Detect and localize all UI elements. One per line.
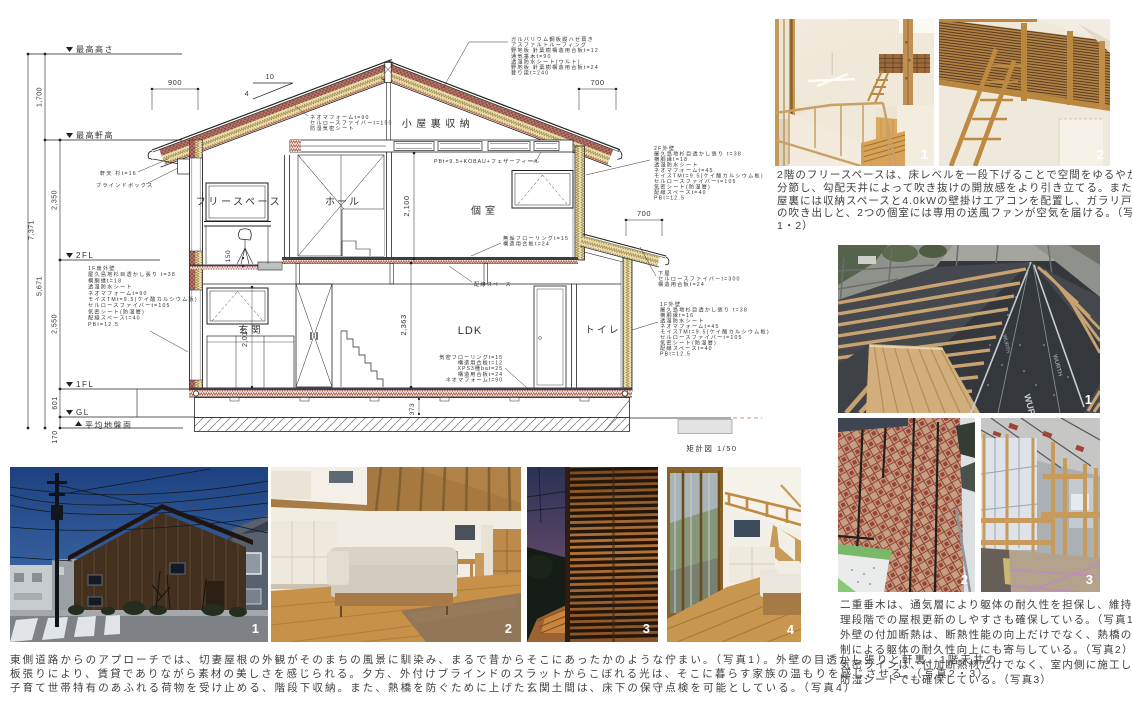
svg-text:矩計図 1/50: 矩計図 1/50	[686, 443, 737, 453]
svg-text:5,671: 5,671	[37, 276, 44, 296]
svg-text:900: 900	[168, 78, 182, 87]
svg-text:ネオマフォームt=90: ネオマフォームt=90	[446, 376, 503, 383]
svg-text:PBt=12.5: PBt=12.5	[654, 196, 685, 202]
svg-text:セルロースファイバーt=105: セルロースファイバーt=105	[88, 302, 171, 309]
svg-text:2,350: 2,350	[52, 190, 59, 210]
svg-text:GL: GL	[76, 408, 90, 417]
svg-text:4: 4	[245, 91, 249, 98]
svg-text:PBt=12.5: PBt=12.5	[88, 322, 119, 328]
svg-text:373: 373	[409, 403, 416, 415]
svg-text:フリースペース: フリースペース	[196, 197, 283, 208]
svg-text:屋久島地杉目透かし張り t=38: 屋久島地杉目透かし張り t=38	[88, 270, 176, 278]
svg-text:7,371: 7,371	[29, 220, 36, 240]
svg-text:700: 700	[637, 209, 651, 218]
svg-text:2,100: 2,100	[402, 195, 411, 216]
svg-text:平均地盤面: 平均地盤面	[85, 420, 133, 430]
svg-text:10: 10	[266, 74, 275, 81]
svg-text:防湿気密シート: 防湿気密シート	[310, 124, 355, 132]
svg-text:配線スペース: 配線スペース	[474, 280, 512, 288]
svg-text:170: 170	[52, 430, 59, 443]
svg-text:モイスTMt=9.5(ケイ酸カルシウム板): モイスTMt=9.5(ケイ酸カルシウム板)	[88, 295, 198, 303]
svg-text:構造用合板t=24: 構造用合板t=24	[658, 280, 705, 288]
svg-text:2,550: 2,550	[52, 314, 59, 334]
svg-text:2FL: 2FL	[76, 251, 94, 260]
svg-text:LDK: LDK	[458, 325, 482, 337]
svg-text:最高軒高: 最高軒高	[76, 130, 114, 140]
svg-text:PBt=9.5+KOBAU+フェザーフィール: PBt=9.5+KOBAU+フェザーフィール	[434, 158, 540, 165]
svg-text:PBt=12.5: PBt=12.5	[660, 352, 691, 358]
svg-text:700: 700	[590, 78, 604, 87]
svg-text:登り梁t=240: 登り梁t=240	[511, 69, 549, 77]
svg-text:150: 150	[225, 250, 232, 262]
svg-text:ブラインドボックス: ブラインドボックス	[96, 181, 153, 189]
svg-text:1F南外壁: 1F南外壁	[88, 264, 116, 272]
svg-text:ネオマフォームt=90: ネオマフォームt=90	[88, 290, 148, 297]
svg-text:2,363: 2,363	[399, 314, 408, 335]
svg-text:構造用合板t=24: 構造用合板t=24	[503, 240, 550, 248]
svg-text:軒天 杉t=16: 軒天 杉t=16	[100, 169, 137, 177]
svg-text:最高高さ: 最高高さ	[76, 44, 114, 54]
svg-text:1,700: 1,700	[37, 87, 44, 107]
svg-text:小屋裏収納: 小屋裏収納	[402, 117, 475, 130]
svg-text:1FL: 1FL	[76, 380, 94, 389]
svg-text:601: 601	[52, 396, 59, 409]
svg-text:トイレ: トイレ	[585, 325, 621, 336]
svg-text:配線スペースt=40: 配線スペースt=40	[88, 314, 141, 322]
svg-text:個室: 個室	[471, 204, 499, 217]
svg-text:ホール: ホール	[325, 196, 361, 208]
svg-text:気密シート(防湿層): 気密シート(防湿層)	[88, 307, 145, 315]
svg-text:透湿防水シート: 透湿防水シート	[88, 283, 133, 291]
svg-text:2,017: 2,017	[242, 327, 249, 347]
svg-text:横胴縁t=18: 横胴縁t=18	[88, 276, 122, 284]
